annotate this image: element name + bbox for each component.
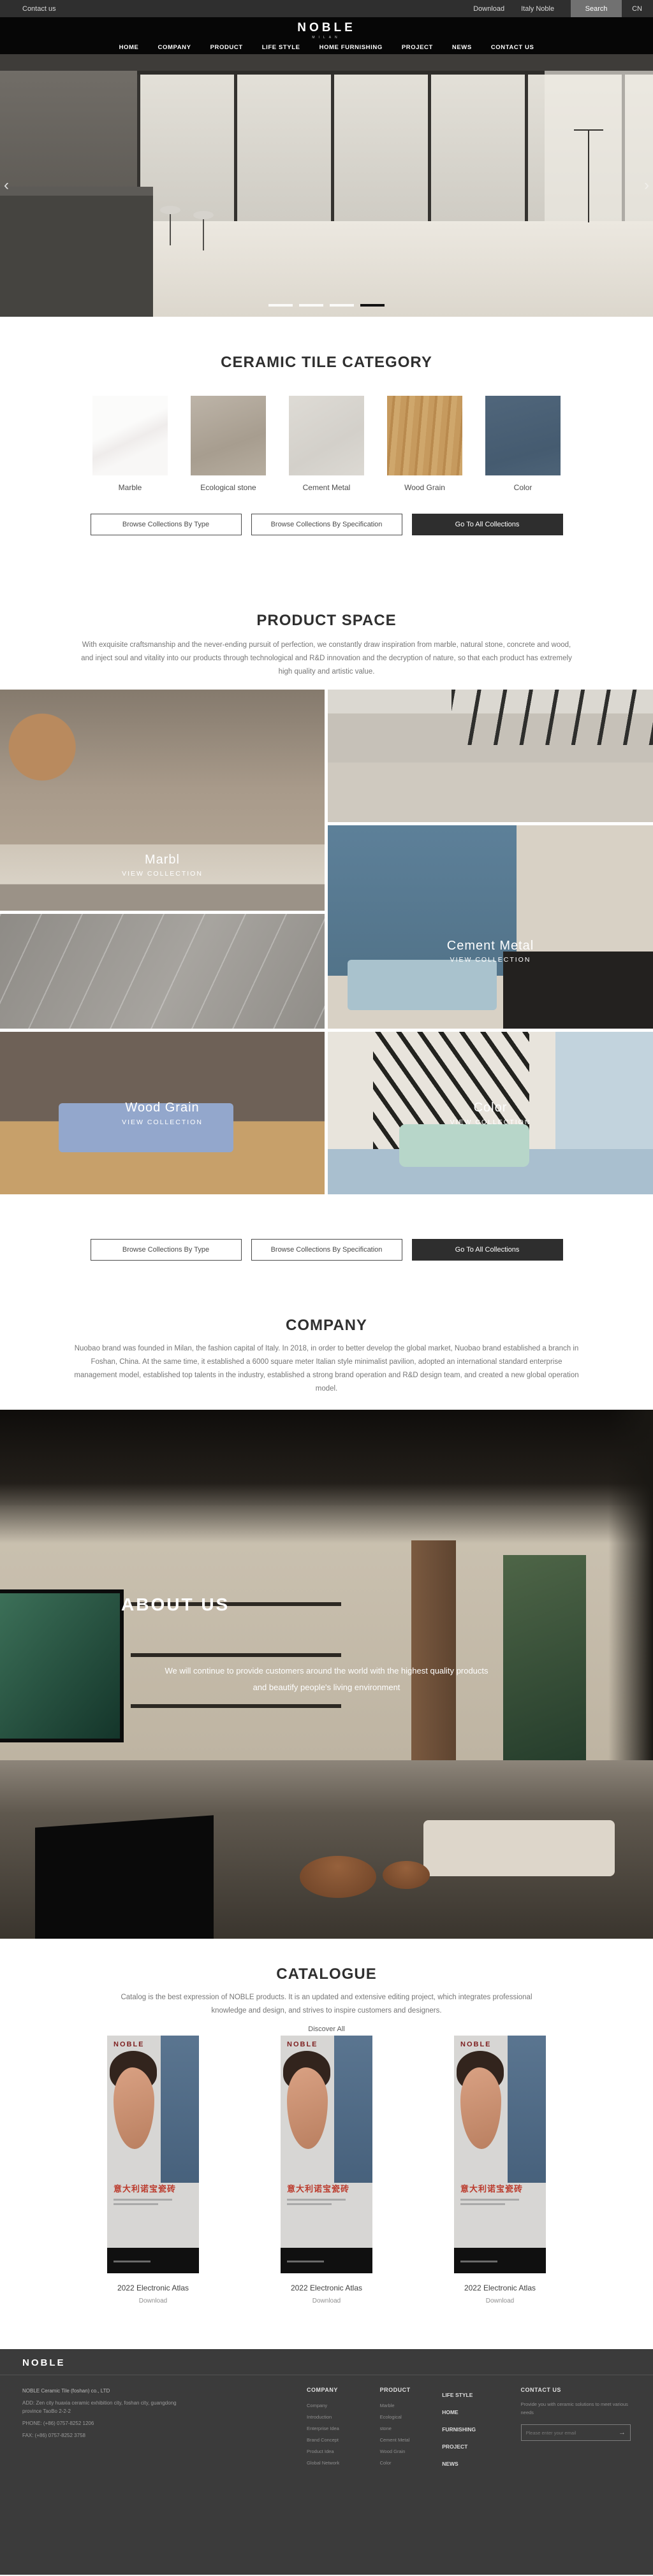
hero-stool-shape <box>170 212 171 245</box>
cover-chinese-title: 意大利诺宝瓷砖 <box>114 2182 176 2194</box>
footer-link-wood-grain[interactable]: Wood Grain <box>380 2446 412 2457</box>
color-swatch-image <box>485 396 561 475</box>
nav-item-news[interactable]: NEWS <box>452 44 472 51</box>
carousel-indicators <box>0 304 653 307</box>
hero-stool-shape <box>160 206 180 214</box>
footer-link-company-introduction[interactable]: Company Introduction <box>307 2400 349 2423</box>
shelf-shape <box>131 1704 341 1708</box>
showroom-ceiling-shape <box>0 1410 653 1544</box>
footer-phone: PHONE: (+86) 0757-8252 1206 <box>22 2419 205 2428</box>
cover-chinese-title: 意大利诺宝瓷砖 <box>287 2182 349 2194</box>
marble-swatch-image <box>92 396 168 475</box>
footer-link-ecological-stone[interactable]: Ecological stone <box>380 2412 412 2435</box>
cover-bar-text-shape <box>287 2261 324 2262</box>
category-swatches: Marble Ecological stone Cement Metal Woo… <box>0 396 653 492</box>
nav-item-project[interactable]: PROJECT <box>402 44 433 51</box>
catalogue-title: CATALOGUE <box>0 1965 653 1983</box>
cover-subtext-shape <box>460 2203 505 2205</box>
site-logo[interactable]: NOBLE <box>0 21 653 35</box>
nav-item-contact-us[interactable]: CONTACT US <box>491 44 534 51</box>
coffee-table-shape <box>383 1861 430 1889</box>
product-space-description: With exquisite craftsmanship and the nev… <box>80 639 574 679</box>
catalogue-item: NOBLE 意大利诺宝瓷砖 2022 Electronic Atlas Down… <box>107 2036 199 2305</box>
cover-logo: NOBLE <box>460 2041 492 2048</box>
browse-by-type-button[interactable]: Browse Collections By Type <box>91 1239 242 1261</box>
wood-grain-swatch-image <box>387 396 462 475</box>
blue-wall-shape <box>555 1032 653 1149</box>
gallery-item-label: Cement Metal <box>328 939 653 953</box>
door-shape <box>411 1540 456 1770</box>
discover-all-link[interactable]: Discover All <box>308 2025 344 2033</box>
go-to-all-collections-button[interactable]: Go To All Collections <box>412 1239 563 1261</box>
carousel-indicator-2[interactable] <box>299 304 323 307</box>
about-us-banner: ABOUT US We will continue to provide cus… <box>0 1410 653 1939</box>
coffee-table-shape <box>300 1856 376 1898</box>
product-space-section: PRODUCT SPACE With exquisite craftsmansh… <box>0 612 653 1261</box>
cement-metal-swatch-image <box>289 396 364 475</box>
gallery-item-wood-grain[interactable]: Wood Grain VIEW COLLECTION <box>0 1032 325 1194</box>
cover-subtext-shape <box>114 2199 172 2201</box>
nav-item-life-style[interactable]: LIFE STYLE <box>262 44 300 51</box>
hero-counter-shape <box>0 187 153 317</box>
hero-ceiling-shape <box>0 54 653 71</box>
cover-subtext-shape <box>287 2203 332 2205</box>
italy-noble-link[interactable]: Italy Noble <box>521 5 554 13</box>
tv-shape <box>35 1815 214 1939</box>
footer-link-project[interactable]: PROJECT <box>442 2438 488 2456</box>
footer-divider <box>0 2375 653 2375</box>
carousel-prev-icon[interactable]: ‹ <box>4 175 9 196</box>
carousel-next-icon[interactable]: › <box>644 175 649 196</box>
catalogue-item: NOBLE 意大利诺宝瓷砖 2022 Electronic Atlas Down… <box>281 2036 372 2305</box>
send-arrow-icon[interactable]: → <box>619 2429 626 2436</box>
search-button[interactable]: Search <box>571 0 622 17</box>
about-us-line1: We will continue to provide customers ar… <box>0 1666 653 1675</box>
language-toggle[interactable]: CN <box>632 5 642 13</box>
catalogue-cover[interactable]: NOBLE 意大利诺宝瓷砖 <box>107 2036 199 2273</box>
company-title: COMPANY <box>0 1317 653 1335</box>
cover-chinese-title: 意大利诺宝瓷砖 <box>460 2182 523 2194</box>
cover-panel-shape <box>161 2036 199 2183</box>
hero-carousel: ‹ › <box>0 54 653 317</box>
footer-column-title: CONTACT US <box>521 2387 631 2393</box>
footer-link-cement-metal[interactable]: Cement Metal <box>380 2435 412 2446</box>
footer-column-nav: LIFE STYLE HOME FURNISHING PROJECT NEWS <box>442 2387 488 2473</box>
cover-logo: NOBLE <box>287 2041 318 2048</box>
download-link[interactable]: Download <box>473 5 504 13</box>
about-us-line2: and beautify people's living environment <box>0 1682 653 1692</box>
download-link[interactable]: Download <box>281 2297 372 2305</box>
category-title: CERAMIC TILE CATEGORY <box>0 354 653 372</box>
product-space-buttons: Browse Collections By Type Browse Collec… <box>0 1239 653 1261</box>
hero-stool-shape <box>193 211 214 219</box>
catalogue-cover[interactable]: NOBLE 意大利诺宝瓷砖 <box>281 2036 372 2273</box>
catalogue-item: NOBLE 意大利诺宝瓷砖 2022 Electronic Atlas Down… <box>454 2036 546 2305</box>
footer-column-title: COMPANY <box>307 2387 349 2393</box>
gallery-right-column: Cement Metal VIEW COLLECTION Color VIEW … <box>328 690 653 1194</box>
product-space-gallery: Marbl VIEW COLLECTION Wood Grain VIEW CO… <box>0 690 653 1194</box>
swatch-label: Wood Grain <box>387 483 462 492</box>
go-to-all-collections-button[interactable]: Go To All Collections <box>412 514 563 535</box>
category-card-color[interactable]: Color <box>485 396 561 492</box>
nav-item-home-furnishing[interactable]: HOME FURNISHING <box>319 44 383 51</box>
footer-link-global-network[interactable]: Global Network <box>307 2457 349 2469</box>
category-section: CERAMIC TILE CATEGORY Marble Ecological … <box>0 354 653 535</box>
model-face-shape <box>114 2067 154 2149</box>
nav-item-home[interactable]: HOME <box>119 44 139 51</box>
noble-homepage: Contact us Download Italy Noble Search C… <box>0 0 653 2576</box>
swatch-label: Ecological stone <box>191 483 266 492</box>
nav-item-product[interactable]: PRODUCT <box>210 44 243 51</box>
browse-by-type-button[interactable]: Browse Collections By Type <box>91 514 242 535</box>
carousel-indicator-4[interactable] <box>360 304 385 307</box>
model-face-shape <box>460 2067 501 2149</box>
swatch-label: Cement Metal <box>289 483 364 492</box>
browse-by-specification-button[interactable]: Browse Collections By Specification <box>251 1239 402 1261</box>
swatch-label: Marble <box>92 483 168 492</box>
email-input[interactable] <box>522 2430 619 2436</box>
gallery-item-stone-texture[interactable] <box>0 914 325 1029</box>
footer-link-product-idea[interactable]: Product Idea <box>307 2446 349 2457</box>
footer-link-news[interactable]: NEWS <box>442 2456 488 2473</box>
category-card-ecological-stone[interactable]: Ecological stone <box>191 396 266 492</box>
catalogue-caption: 2022 Electronic Atlas <box>454 2283 546 2292</box>
cover-subtext-shape <box>114 2203 158 2205</box>
cover-logo: NOBLE <box>114 2041 145 2048</box>
footer-column-product: PRODUCT Marble Ecological stone Cement M… <box>380 2387 412 2473</box>
footer-column-company: COMPANY Company Introduction Enterprise … <box>307 2387 349 2473</box>
main-nav: HOME COMPANY PRODUCT LIFE STYLE HOME FUR… <box>0 44 653 51</box>
pergola-shape <box>451 690 653 745</box>
company-section: COMPANY Nuobao brand was founded in Mila… <box>0 1317 653 1396</box>
footer-link-color[interactable]: Color <box>380 2457 412 2469</box>
cover-subtext-shape <box>287 2199 346 2201</box>
gallery-item-color[interactable]: Color VIEW COLLECTION <box>328 1032 653 1194</box>
gallery-left-column: Marbl VIEW COLLECTION Wood Grain VIEW CO… <box>0 690 325 1194</box>
ecological-stone-swatch-image <box>191 396 266 475</box>
plant-picture-shape <box>503 1555 586 1769</box>
shelf-shape <box>131 1653 341 1657</box>
category-card-cement-metal[interactable]: Cement Metal <box>289 396 364 492</box>
carousel-indicator-1[interactable] <box>268 304 293 307</box>
product-space-title: PRODUCT SPACE <box>0 612 653 630</box>
footer-logo[interactable]: NOBLE <box>22 2357 631 2368</box>
catalogue-covers: NOBLE 意大利诺宝瓷砖 2022 Electronic Atlas Down… <box>0 2036 653 2305</box>
gallery-item-label: Marbl <box>0 853 325 867</box>
footer-contact-column: CONTACT US Provide you with ceramic solu… <box>521 2387 631 2473</box>
cover-bar-text-shape <box>460 2261 497 2262</box>
site-footer: NOBLE NOBLE Ceramic Tile (foshan) co., L… <box>0 2349 653 2575</box>
browse-by-specification-button[interactable]: Browse Collections By Specification <box>251 514 402 535</box>
nav-item-company[interactable]: COMPANY <box>158 44 191 51</box>
carousel-indicator-3[interactable] <box>330 304 354 307</box>
category-card-marble[interactable]: Marble <box>92 396 168 492</box>
gallery-item-label: Wood Grain <box>0 1101 325 1115</box>
discover-all-row: Discover All <box>0 2025 653 2033</box>
catalogue-caption: 2022 Electronic Atlas <box>281 2283 372 2292</box>
catalogue-caption: 2022 Electronic Atlas <box>107 2283 199 2292</box>
catalogue-description: Catalog is the best expression of NOBLE … <box>119 1991 534 2018</box>
cover-subtext-shape <box>460 2199 519 2201</box>
hero-outdoor-shape <box>545 71 653 221</box>
footer-link-marble[interactable]: Marble <box>380 2400 412 2412</box>
cover-bar-text-shape <box>114 2261 150 2262</box>
footer-contact-text: Provide you with ceramic solutions to me… <box>521 2400 631 2417</box>
hero-coat-rack-shape <box>588 129 589 222</box>
hero-coat-rack-shape <box>574 129 603 131</box>
gallery-item-cement-metal[interactable]: Cement Metal VIEW COLLECTION <box>328 825 653 1029</box>
hero-stool-shape <box>203 217 204 250</box>
cover-panel-shape <box>508 2036 546 2183</box>
site-logo-subtitle: MILAN <box>0 36 653 40</box>
category-buttons: Browse Collections By Type Browse Collec… <box>0 514 653 535</box>
view-collection-link[interactable]: VIEW COLLECTION <box>328 1118 653 1126</box>
swatch-label: Color <box>485 483 561 492</box>
sofa-shape <box>399 1124 529 1166</box>
category-card-wood-grain[interactable]: Wood Grain <box>387 396 462 492</box>
contact-us-link[interactable]: Contact us <box>22 5 56 13</box>
footer-address: ADD: Zen city huaxia ceramic exhibition … <box>22 2399 182 2415</box>
footer-link-home-furnishing[interactable]: HOME FURNISHING <box>442 2404 488 2438</box>
sofa-shape <box>423 1820 615 1876</box>
download-link[interactable]: Download <box>454 2297 546 2305</box>
footer-company-name: NOBLE Ceramic Tile (foshan) co., LTD <box>22 2387 205 2395</box>
gallery-item-terrace[interactable] <box>328 690 653 822</box>
footer-link-life-style[interactable]: LIFE STYLE <box>442 2387 488 2404</box>
model-face-shape <box>287 2067 328 2149</box>
about-us-title: ABOUT US <box>121 1595 230 1615</box>
footer-column-title: PRODUCT <box>380 2387 412 2393</box>
sofa-shape <box>348 960 497 1011</box>
cover-panel-shape <box>334 2036 372 2183</box>
catalogue-section: CATALOGUE Catalog is the best expression… <box>0 1965 653 2305</box>
footer-link-brand-concept[interactable]: Brand Concept <box>307 2435 349 2446</box>
view-collection-link[interactable]: VIEW COLLECTION <box>0 1118 325 1126</box>
gallery-item-label: Color <box>328 1101 653 1115</box>
download-link[interactable]: Download <box>107 2297 199 2305</box>
footer-fax: FAX: (+86) 0757-8252 3758 <box>22 2431 205 2440</box>
footer-link-enterprise-idea[interactable]: Enterprise Idea <box>307 2423 349 2435</box>
footer-body: NOBLE Ceramic Tile (foshan) co., LTD ADD… <box>22 2387 631 2473</box>
catalogue-cover[interactable]: NOBLE 意大利诺宝瓷砖 <box>454 2036 546 2273</box>
site-header: NOBLE MILAN HOME COMPANY PRODUCT LIFE ST… <box>0 17 653 54</box>
view-collection-link[interactable]: VIEW COLLECTION <box>328 956 653 964</box>
top-utility-bar: Contact us Download Italy Noble Search C… <box>0 0 653 17</box>
view-collection-link[interactable]: VIEW COLLECTION <box>0 870 325 878</box>
gallery-item-marble[interactable]: Marbl VIEW COLLECTION <box>0 690 325 911</box>
newsletter-input-group: → <box>521 2424 631 2441</box>
footer-company-info: NOBLE Ceramic Tile (foshan) co., LTD ADD… <box>22 2387 205 2473</box>
company-description: Nuobao brand was founded in Milan, the f… <box>71 1342 582 1396</box>
